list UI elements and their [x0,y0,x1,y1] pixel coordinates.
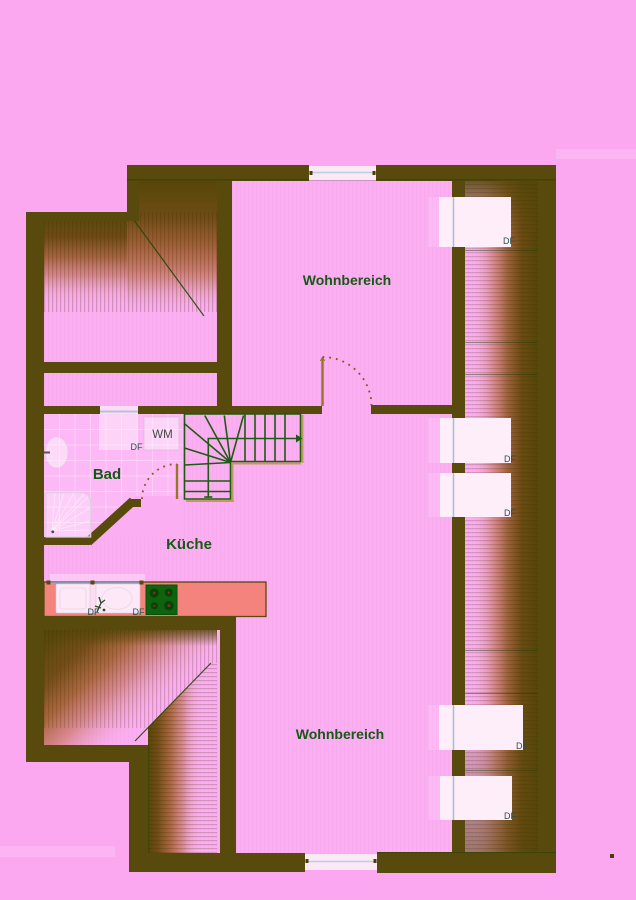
svg-text:DF: DF [516,741,528,751]
svg-text:DF: DF [133,607,145,617]
svg-text:DF: DF [131,442,143,452]
svg-text:DF: DF [504,811,516,821]
svg-text:WM: WM [152,429,172,441]
svg-text:Wohnbereich: Wohnbereich [303,272,391,288]
svg-text:DF: DF [88,607,100,617]
svg-text:DF: DF [503,236,515,246]
svg-text:Bad: Bad [93,466,121,483]
svg-text:DF: DF [504,454,516,464]
svg-text:Küche: Küche [166,536,212,553]
svg-text:DF: DF [504,508,516,518]
svg-text:Wohnbereich: Wohnbereich [296,726,384,742]
